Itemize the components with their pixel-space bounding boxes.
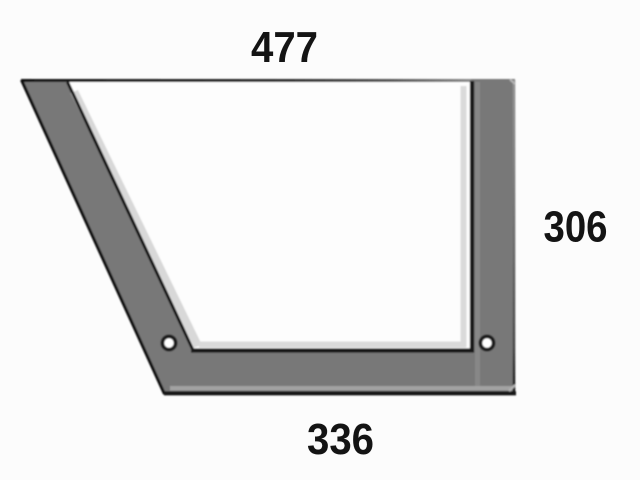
svg-text:306: 306 xyxy=(544,202,608,251)
svg-text:336: 336 xyxy=(307,415,374,464)
svg-text:477: 477 xyxy=(251,23,318,72)
